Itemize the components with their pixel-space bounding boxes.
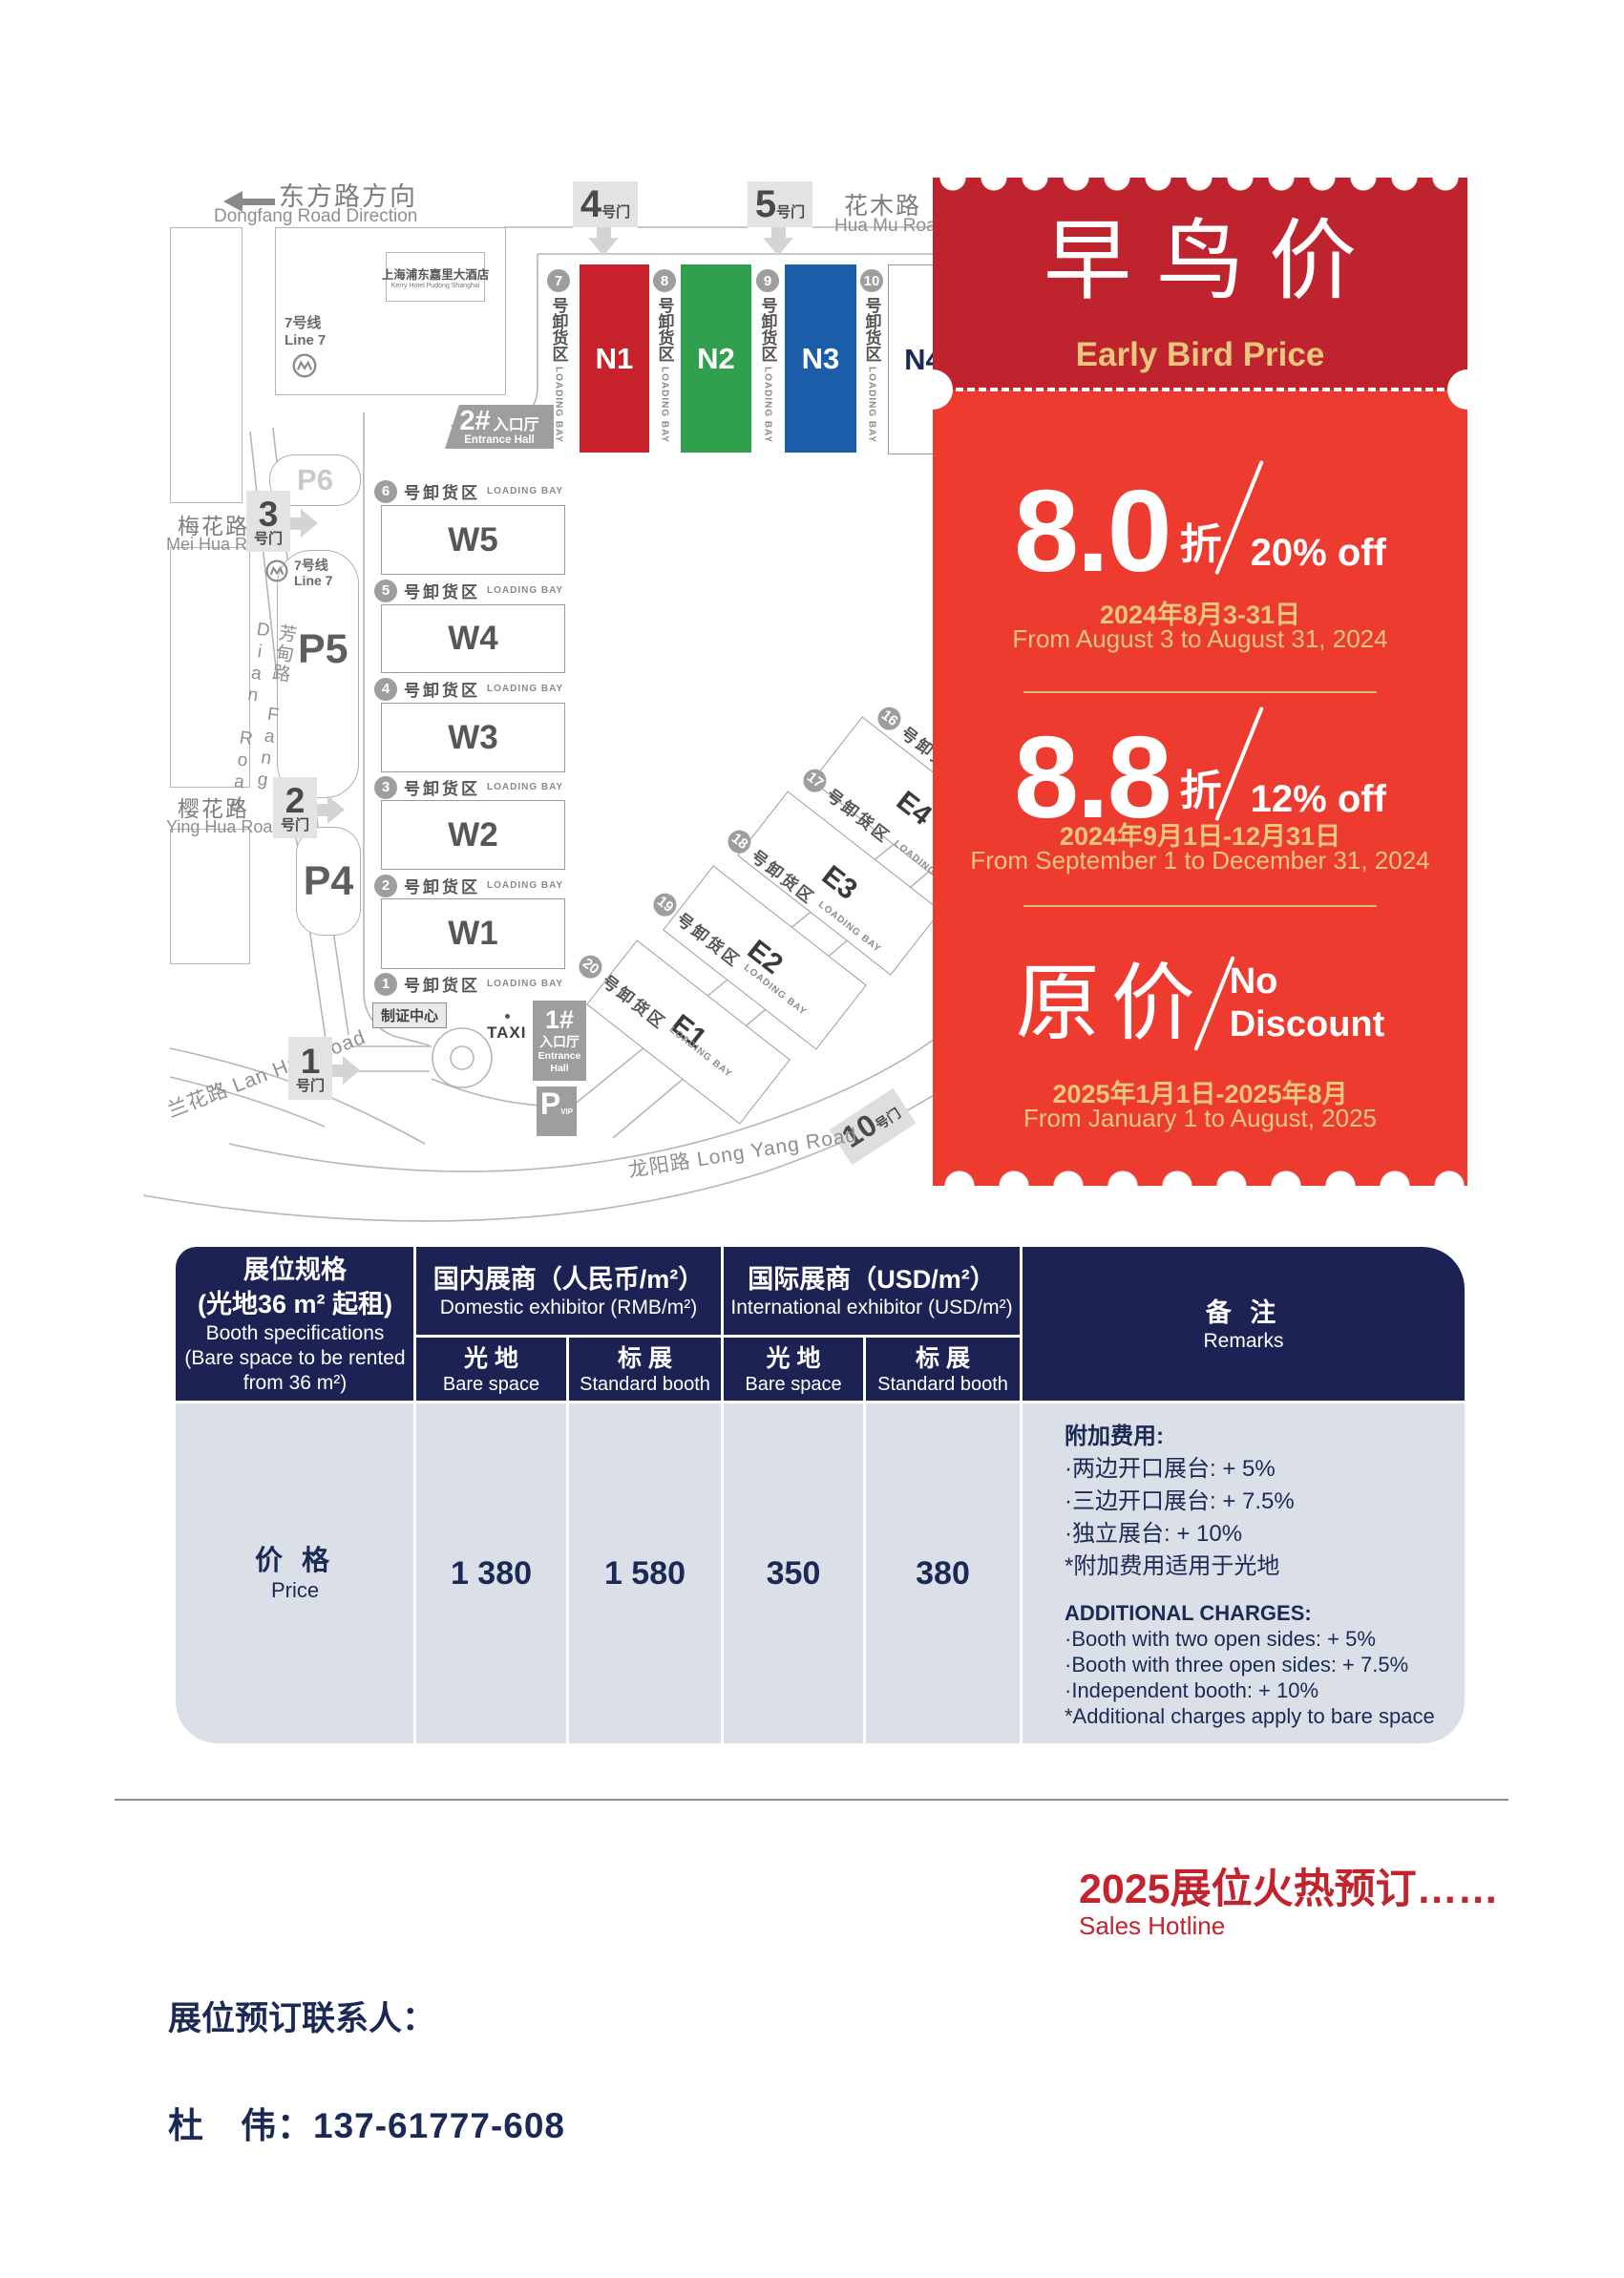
loading-bay-9: 9 号卸货区 LOADING BAY xyxy=(750,269,785,443)
price-intl-bare: 350 xyxy=(724,1403,863,1743)
tier1-value: 8.0 xyxy=(1014,485,1171,579)
loading-bay-10-number: 10 xyxy=(860,269,883,292)
gate-3-number: 3 xyxy=(259,496,279,532)
remarks-cn-item: ·两边开口展台: + 5% xyxy=(1065,1453,1465,1486)
tier3-off-line1: No xyxy=(1230,960,1385,1003)
remarks-cn-item: *附加费用适用于光地 xyxy=(1065,1550,1465,1583)
price-domestic-std: 1 580 xyxy=(569,1403,721,1743)
footer-divider xyxy=(115,1799,1508,1801)
loading-bay-label-en: LOADING BAY xyxy=(487,684,563,694)
metro-icon xyxy=(265,559,288,582)
entrance-2-number: 2# xyxy=(459,408,490,435)
hotel-name-en: Kerry Hotel Pudong Shanghai xyxy=(391,283,480,289)
bare-en: Bare space xyxy=(745,1374,841,1396)
metro-en: Line 7 xyxy=(294,573,332,588)
spec-en2: (Bare space to be rented xyxy=(184,1346,405,1371)
huamu-road-label-en: Hua Mu Road xyxy=(834,216,946,237)
spec-cn1: 展位规格 xyxy=(243,1253,347,1287)
gate-4: 4 号门 xyxy=(573,181,638,227)
gate-2-number: 2 xyxy=(285,783,306,818)
loading-bay-label-cn: 号卸货区 xyxy=(404,874,480,897)
tier3-row: 原价 No Discount xyxy=(933,947,1467,1060)
loading-bay-label-en: LOADING BAY xyxy=(487,486,563,496)
table-grid-line xyxy=(863,1337,866,1743)
gate-4-arrow-icon xyxy=(588,227,619,256)
bare-cn: 光 地 xyxy=(767,1343,821,1374)
loading-bay-6-number: 6 xyxy=(374,480,397,503)
tier3-value: 原价 xyxy=(1016,961,1207,1045)
taxi-label: TAXI xyxy=(487,1023,526,1043)
intl-en: International exhibitor (USD/m²) xyxy=(730,1297,1012,1319)
loading-bay-label-cn: 号卸货区 xyxy=(404,972,480,996)
table-grid-line xyxy=(413,1247,416,1743)
loading-bay-3-number: 3 xyxy=(374,776,397,799)
city-block xyxy=(170,829,250,964)
price-label-cn: 价 格 xyxy=(255,1544,335,1578)
hall-n1: N1 xyxy=(580,264,649,453)
hotel-label: 上海浦东嘉里大酒店 Kerry Hotel Pudong Shanghai xyxy=(386,252,485,302)
entrance-1-label-en: Entrance Hall xyxy=(537,1050,582,1073)
tier2-value: 8.8 xyxy=(1014,731,1171,825)
loading-bay-label-en: LOADING BAY xyxy=(487,979,563,989)
remarks-en-item: ·Booth with three open sides: + 7.5% xyxy=(1065,1652,1465,1677)
contact-phone: 杜 伟：137-61777-608 xyxy=(168,2097,565,2148)
std-en: Standard booth xyxy=(580,1374,710,1396)
metro-cn: 7号线 xyxy=(294,558,332,573)
metro-line7-label: 7号线 Line 7 xyxy=(285,315,326,349)
remarks-en-item: ·Independent booth: + 10% xyxy=(1065,1677,1465,1703)
parking-p6: P6 xyxy=(297,463,333,497)
price-label-en: Price xyxy=(271,1578,319,1603)
remarks-cn-item: ·独立展台: + 10% xyxy=(1065,1518,1465,1550)
loading-bay-label-cn: 号卸货区 xyxy=(404,775,480,799)
remarks-en-item: *Additional charges apply to bare space xyxy=(1065,1703,1465,1729)
col-spec-header: 展位规格 (光地36 m² 起租) Booth specifications (… xyxy=(176,1247,414,1401)
loading-bay-3: 3 号卸货区 LOADING BAY xyxy=(374,775,563,799)
loading-bay-5: 5 号卸货区 LOADING BAY xyxy=(374,579,563,602)
std-en: Standard booth xyxy=(877,1374,1008,1396)
entrance-hall-2: 2# 入口厅 Entrance Hall xyxy=(445,405,554,449)
remarks-en-item: ·Booth with two open sides: + 5% xyxy=(1065,1626,1465,1652)
gate-2: 2 号门 xyxy=(273,777,317,838)
remarks-header: 备 注 Remarks xyxy=(1023,1247,1465,1401)
metro-cn: 7号线 xyxy=(285,315,326,332)
loading-bay-8: 8 号卸货区 LOADING BAY xyxy=(647,269,682,443)
spec-cn2: (光地36 m² 起租) xyxy=(198,1287,392,1321)
gate-5-number: 5 xyxy=(755,183,776,226)
dongfang-road-label-en: Dongfang Road Direction xyxy=(214,206,417,227)
spec-en1: Booth specifications xyxy=(206,1321,385,1346)
sub-std-domestic: 标 展 Standard booth xyxy=(569,1338,721,1401)
hall-n2: N2 xyxy=(681,264,751,453)
loading-bay-label-cn: 号卸货区 xyxy=(404,479,480,503)
loading-bay-4: 4 号卸货区 LOADING BAY xyxy=(374,677,563,701)
metro-line7-label: 7号线 Line 7 xyxy=(294,558,332,588)
ticket-top-section: 早鸟价 Early Bird Price xyxy=(933,178,1467,390)
gate-suffix: 号门 xyxy=(254,532,283,546)
entrance-2-label-en: Entrance Hall xyxy=(464,435,535,447)
ticket-dashed-separator xyxy=(933,388,1467,391)
sub-bare-intl: 光 地 Bare space xyxy=(724,1338,863,1401)
tier1-date-en: From August 3 to August 31, 2024 xyxy=(933,624,1467,654)
gate-5: 5 号门 xyxy=(748,181,812,227)
loading-bay-label-cn: 号卸货区 xyxy=(860,297,884,362)
tier1-off: 20% off xyxy=(1251,532,1386,575)
contact-label: 展位预订联系人： xyxy=(168,1992,435,2040)
remarks-cell: 附加费用: ·两边开口展台: + 5% ·三边开口展台: + 7.5% ·独立展… xyxy=(1023,1403,1465,1743)
parking-p: P xyxy=(540,1086,560,1122)
remarks-en: Remarks xyxy=(1203,1330,1283,1353)
gate-1-number: 1 xyxy=(301,1044,321,1079)
city-block xyxy=(170,227,243,503)
yinghua-road-label-en: Ying Hua Road xyxy=(166,817,282,837)
flyer-page: 东方路方向 Dongfang Road Direction 上海浦东嘉里大酒店 … xyxy=(0,0,1624,2278)
loading-bay-label-en: LOADING BAY xyxy=(867,367,877,443)
parking-p4-area: P4 xyxy=(296,827,361,936)
gate-1: 1 号门 xyxy=(288,1037,332,1100)
hotel-name-cn: 上海浦东嘉里大酒店 xyxy=(382,264,490,283)
tier1-unit: 折 xyxy=(1180,510,1222,571)
tier1-row: 8.0 折 20% off xyxy=(933,453,1467,579)
hall-w5: W5 xyxy=(381,505,565,575)
loading-bay-9-number: 9 xyxy=(756,269,779,292)
ticket-title-en: Early Bird Price xyxy=(933,336,1467,374)
spec-en3: from 36 m²) xyxy=(243,1371,348,1396)
sub-std-intl: 标 展 Standard booth xyxy=(866,1338,1020,1401)
domestic-en: Domestic exhibitor (RMB/m²) xyxy=(440,1297,698,1319)
hall-w3: W3 xyxy=(381,703,565,772)
gate-suffix: 号门 xyxy=(296,1079,325,1093)
loading-bay-2-number: 2 xyxy=(374,875,397,897)
metro-en: Line 7 xyxy=(285,332,326,349)
metro-icon xyxy=(292,353,317,378)
loading-bay-10: 10 号卸货区 LOADING BAY xyxy=(854,269,889,443)
loading-bay-label-cn: 号卸货区 xyxy=(547,297,571,362)
ticket-title-cn: 早鸟价 xyxy=(933,218,1467,306)
loading-bay-label-en: LOADING BAY xyxy=(487,585,563,596)
ticket-divider xyxy=(1023,691,1377,693)
group-intl-header: 国际展商（USD/m²） International exhibitor (US… xyxy=(724,1247,1020,1335)
loading-bay-1: 1 号卸货区 LOADING BAY xyxy=(374,972,563,996)
loading-bay-label-cn: 号卸货区 xyxy=(404,677,480,701)
gate-suffix: 号门 xyxy=(281,818,309,833)
loading-bay-label-cn: 号卸货区 xyxy=(404,579,480,602)
domestic-cn: 国内展商（人民币/m²） xyxy=(433,1262,705,1297)
gate-5-arrow-icon xyxy=(763,227,793,256)
ticket-scallop-edge xyxy=(933,178,1467,193)
std-cn: 标 展 xyxy=(618,1343,672,1374)
loading-bay-label-en: LOADING BAY xyxy=(660,367,670,443)
table-grid-line xyxy=(566,1337,569,1743)
entrance-hall-1: 1# 入口厅 Entrance Hall xyxy=(533,1001,586,1081)
loading-bay-2: 2 号卸货区 LOADING BAY xyxy=(374,874,563,897)
bare-en: Bare space xyxy=(443,1374,539,1396)
loading-bay-label-cn: 号卸货区 xyxy=(756,297,780,362)
loading-bay-label-en: LOADING BAY xyxy=(763,367,773,443)
sub-bare-domestic: 光 地 Bare space xyxy=(416,1338,566,1401)
loading-bay-label-en: LOADING BAY xyxy=(487,782,563,792)
price-intl-std: 380 xyxy=(866,1403,1020,1743)
loading-bay-label-en: LOADING BAY xyxy=(554,367,564,443)
remarks-cn-title: 附加费用: xyxy=(1065,1421,1465,1453)
gate-3-arrow-icon xyxy=(290,509,318,538)
gate-2-arrow-icon xyxy=(317,795,345,824)
booking-hot-title: 2025展位火热预订…… xyxy=(1079,1856,1499,1915)
table-grid-line xyxy=(721,1247,724,1743)
taxi-dot xyxy=(505,1014,510,1019)
gate-suffix: 号门 xyxy=(776,201,805,221)
gate-4-number: 4 xyxy=(580,183,601,226)
ticket-notch-left xyxy=(913,369,953,410)
row-price-label: 价 格 Price xyxy=(176,1403,414,1743)
ticket-scallop-edge xyxy=(933,1168,1467,1186)
tier3-off-line2: Discount xyxy=(1230,1003,1385,1046)
hall-w4: W4 xyxy=(381,604,565,673)
bare-cn: 光 地 xyxy=(464,1343,518,1374)
loading-bay-4-number: 4 xyxy=(374,678,397,701)
loading-bay-label-cn: 号卸货区 xyxy=(653,297,677,362)
loading-bay-5-number: 5 xyxy=(374,580,397,602)
parking-vip-label: VIP xyxy=(560,1107,573,1116)
tier2-date-en: From September 1 to December 31, 2024 xyxy=(933,846,1467,875)
table-grid-line xyxy=(414,1335,1023,1338)
table-grid-line xyxy=(1020,1247,1023,1743)
hall-w1: W1 xyxy=(381,898,565,969)
group-domestic-header: 国内展商（人民币/m²） Domestic exhibitor (RMB/m²) xyxy=(416,1247,721,1335)
ticket-divider xyxy=(1023,905,1377,907)
loading-bay-1-number: 1 xyxy=(374,973,397,996)
early-bird-ticket: 早鸟价 Early Bird Price 8.0 折 20% off 2024年… xyxy=(933,178,1467,1186)
loading-bay-label-en: LOADING BAY xyxy=(487,880,563,891)
entrance-2-label-cn: 入口厅 xyxy=(494,418,539,433)
std-cn: 标 展 xyxy=(916,1343,970,1374)
sales-hotline-label: Sales Hotline xyxy=(1079,1911,1225,1941)
remarks-cn-item: ·三边开口展台: + 7.5% xyxy=(1065,1486,1465,1518)
parking-p5: P5 xyxy=(298,626,348,673)
remarks-cn: 备 注 xyxy=(1206,1296,1282,1330)
price-domestic-bare: 1 380 xyxy=(416,1403,566,1743)
parking-vip: P VIP xyxy=(537,1086,577,1136)
gate-3: 3 号门 xyxy=(246,491,290,552)
tier2-row: 8.8 折 12% off xyxy=(933,701,1467,825)
entrance-1-number: 1# xyxy=(545,1007,574,1033)
loading-bay-8-number: 8 xyxy=(653,269,676,292)
parking-p4: P4 xyxy=(304,858,354,905)
loading-bay-6: 6 号卸货区 LOADING BAY xyxy=(374,479,563,503)
badge-center-box: 制证中心 xyxy=(372,1002,447,1028)
loading-bay-7-number: 7 xyxy=(547,269,570,292)
gate-suffix: 号门 xyxy=(601,201,630,221)
ticket-notch-right xyxy=(1447,369,1487,410)
hall-n3: N3 xyxy=(785,264,856,453)
entrance-1-label-cn: 入口厅 xyxy=(539,1035,580,1048)
hall-w2: W2 xyxy=(381,800,565,870)
tier2-unit: 折 xyxy=(1180,756,1222,817)
intl-cn: 国际展商（USD/m²） xyxy=(748,1262,996,1297)
tier3-date-en: From January 1 to August, 2025 xyxy=(933,1104,1467,1133)
table-grid-line xyxy=(176,1401,1465,1403)
remarks-en-title: ADDITIONAL CHARGES: xyxy=(1065,1600,1465,1626)
